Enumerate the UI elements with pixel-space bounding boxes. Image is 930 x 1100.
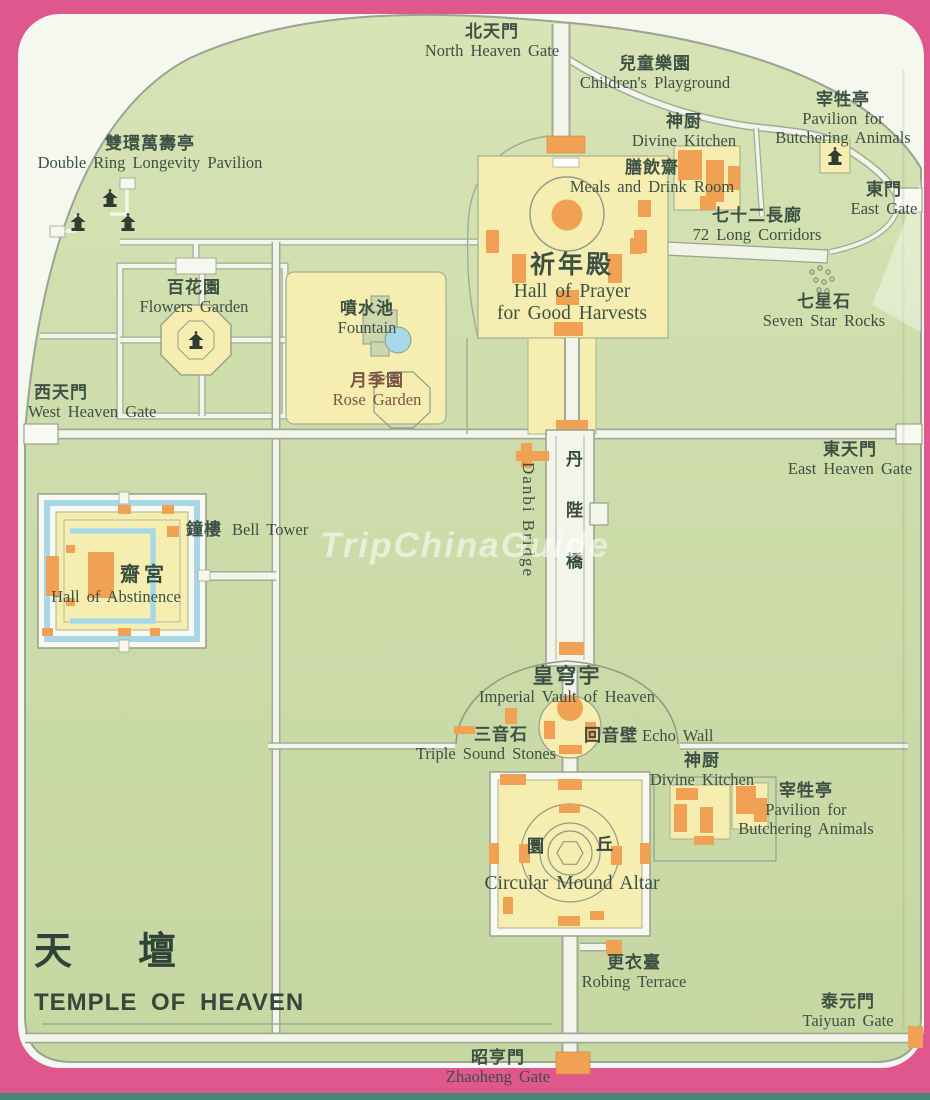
label-triple-sound-stones-zh: 三音石 (474, 725, 528, 745)
label-childrens-playground: 兒童樂園 Children's Playground (580, 54, 730, 93)
label-flowers-garden: 百花園 Flowers Garden (140, 278, 249, 317)
taiyuan-gate-marker (908, 1026, 923, 1048)
label-echo-wall: 回音壁 Echo Wall (584, 726, 713, 746)
label-hall-of-prayer: 祈年殿 Hall of Prayer for Good Harvests (497, 252, 647, 326)
label-west-heaven-gate: 西天門 West Heaven Gate (28, 383, 156, 422)
west-heaven-gate-marker (24, 424, 58, 444)
hall-of-prayer-hall (552, 200, 583, 231)
label-imperial-vault: 皇穹宇 Imperial Vault of Heaven (479, 664, 655, 707)
label-north-heaven-gate: 北天門 North Heaven Gate (425, 22, 559, 61)
label-meals-drink-room: 膳飲齋 Meals and Drink Room (570, 158, 734, 197)
map-title-en: TEMPLE OF HEAVEN (34, 989, 304, 1017)
label-taiyuan-gate: 泰元門 Taiyuan Gate (802, 992, 893, 1031)
label-robing-terrace: 更衣臺 Robing Terrace (582, 953, 687, 992)
label-bell-tower: 鐘樓 Bell Tower (186, 520, 308, 540)
label-long-corridors: 七十二長廊 72 Long Corridors (693, 206, 822, 245)
label-circular-mound-zh1: 圜 (527, 832, 544, 857)
label-east-gate: 東門 East Gate (851, 180, 918, 219)
label-circular-mound-en: Circular Mound Altar (485, 873, 660, 895)
label-abstinence-zh: 齋宮 (120, 558, 168, 587)
map-title-zh: 天 壇 (34, 920, 304, 975)
scanned-tourist-map: { "title": { "zh": "天 壇", "en": "TEMPLE … (0, 0, 930, 1100)
label-double-ring-pavilion: 雙環萬壽亭 Double Ring Longevity Pavilion (38, 134, 263, 173)
label-rose-garden: 月季園 Rose Garden (333, 371, 422, 410)
robing-terrace-marker (606, 940, 622, 954)
triple-sound-stones-marker (454, 726, 475, 734)
label-zhaoheng-gate: 昭亨門 Zhaoheng Gate (446, 1048, 550, 1087)
bottom-edge-strip (0, 1093, 930, 1100)
label-abstinence-en: Hall of Abstinence (51, 588, 181, 607)
label-fountain: 噴水池 Fountain (338, 299, 397, 338)
watermark: TripChinaGuide (320, 526, 610, 566)
label-seven-star-rocks: 七星石 Seven Star Rocks (763, 292, 885, 331)
circular-mound-compound (489, 772, 650, 936)
label-triple-sound-stones-en: Triple Sound Stones (416, 745, 556, 764)
map-title: 天 壇 TEMPLE OF HEAVEN (34, 920, 304, 1017)
label-circular-mound-zh2: 丘 (596, 830, 613, 855)
label-pavilion-butchering-north: 宰牲亭 Pavilion for Butchering Animals (775, 90, 910, 147)
zhaoheng-gate-marker (556, 1052, 590, 1074)
label-pavilion-butchering-south: 宰牲亭 Pavilion for Butchering Animals (738, 781, 873, 838)
label-divine-kitchen-north: 神厨 Divine Kitchen (632, 112, 736, 151)
bell-tower-marker (167, 526, 179, 537)
label-east-heaven-gate: 東天門 East Heaven Gate (788, 440, 912, 479)
